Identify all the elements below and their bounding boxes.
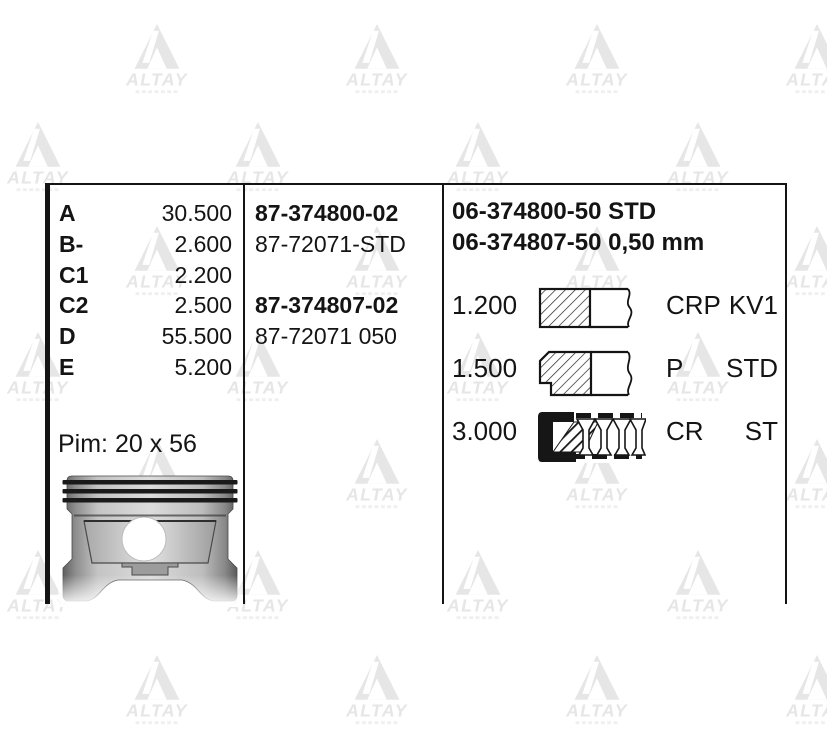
ring-size: 3.000 [452, 418, 517, 444]
dimension-value: 2.500 [95, 294, 232, 317]
dimension-value: 2.200 [95, 264, 232, 287]
watermark-tiles [6, 24, 827, 745]
dimension-label: C2 [59, 294, 88, 317]
ring-set-part-number: 06-374807-50 0,50 mm [452, 231, 704, 255]
piston-illustration [58, 471, 242, 607]
dimension-label: C1 [59, 264, 88, 287]
dimension-label: B- [59, 233, 83, 256]
dimension-value: 30.500 [95, 202, 232, 225]
piston-part-number: 87-374800-02 [255, 202, 398, 225]
dimension-value: 5.200 [95, 356, 232, 379]
dimension-label: E [59, 356, 74, 379]
table-border-top [45, 183, 787, 185]
ring-set-part-number: 06-374800-50 STD [452, 200, 656, 224]
ring-grade: ST [706, 418, 778, 444]
ring-groove [63, 498, 238, 503]
ring-profile-rectangular [538, 287, 638, 329]
ring-groove [63, 480, 238, 485]
ring-grade: STD [706, 355, 778, 381]
ring-type: CR [666, 418, 704, 444]
ring-groove [63, 489, 238, 494]
piston-part-number: 87-72071 050 [255, 325, 397, 348]
ring-type: P [666, 355, 683, 381]
ring-profile-oil-control [534, 409, 646, 465]
piston-part-number: 87-72071-STD [255, 233, 406, 256]
column-divider-2 [442, 183, 444, 604]
pin-size-label: Pim: 20 x 56 [58, 432, 197, 457]
catalog-page: ALTAY [0, 0, 827, 745]
dimension-value: 55.500 [95, 325, 232, 348]
ring-size: 1.200 [452, 292, 517, 318]
pin-bore-hole [122, 517, 166, 561]
ring-grade: KV1 [706, 292, 778, 318]
table-border-right [785, 183, 787, 604]
ring-size: 1.500 [452, 355, 517, 381]
piston-part-number: 87-374807-02 [255, 294, 398, 317]
dimension-label: A [59, 202, 76, 225]
ring-profile-taper-face [538, 350, 638, 397]
column-divider-1 [243, 183, 245, 604]
table-border-left [45, 183, 50, 604]
dimension-label: D [59, 325, 76, 348]
dimension-value: 2.600 [95, 233, 232, 256]
